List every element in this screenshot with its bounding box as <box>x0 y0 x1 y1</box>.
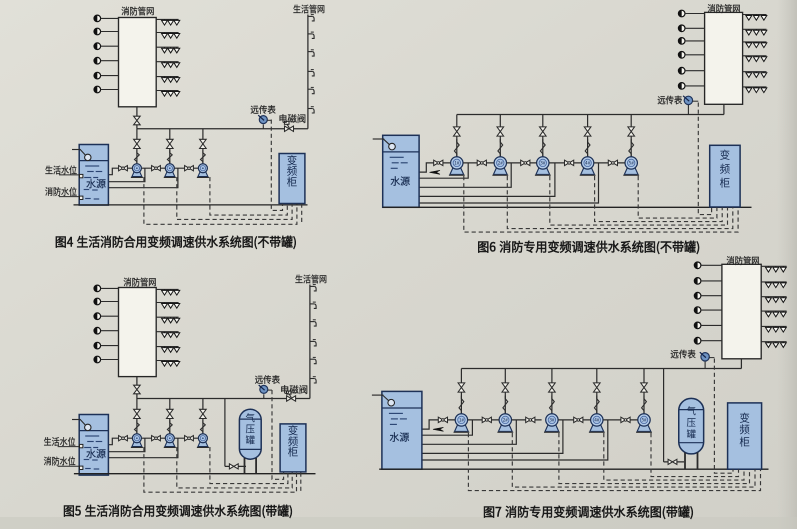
svg-text:生活管网: 生活管网 <box>293 3 325 16</box>
svg-text:柜: 柜 <box>287 174 298 189</box>
svg-text:图5 生活消防合用变频调速供水系统图(带罐): 图5 生活消防合用变频调速供水系统图(带罐) <box>63 501 293 520</box>
svg-text:柜: 柜 <box>288 445 299 460</box>
svg-text:频: 频 <box>720 162 731 177</box>
svg-text:柜: 柜 <box>720 176 731 191</box>
svg-text:5#: 5# <box>629 161 635 167</box>
svg-text:2#: 2# <box>503 418 509 424</box>
svg-text:消防水位: 消防水位 <box>45 185 77 198</box>
svg-text:图6 消防专用变频调速供水系统图(不带罐): 图6 消防专用变频调速供水系统图(不带罐) <box>477 236 700 255</box>
svg-text:水源: 水源 <box>86 446 106 461</box>
svg-text:柜: 柜 <box>739 435 750 450</box>
svg-text:远传表: 远传表 <box>670 348 695 361</box>
svg-text:消防管网: 消防管网 <box>121 5 154 18</box>
svg-text:3#: 3# <box>540 161 546 167</box>
svg-text:远传表: 远传表 <box>250 103 275 116</box>
svg-text:图4 生活消防合用变频调速供水系统图(不带罐): 图4 生活消防合用变频调速供水系统图(不带罐) <box>55 231 297 250</box>
svg-text:水源: 水源 <box>389 429 409 444</box>
svg-text:1#: 1# <box>454 161 460 167</box>
svg-text:生活水位: 生活水位 <box>45 163 77 176</box>
svg-text:2#: 2# <box>498 161 504 167</box>
svg-text:电磁阀: 电磁阀 <box>278 112 306 125</box>
svg-text:远传表: 远传表 <box>255 373 280 386</box>
svg-text:电磁阀: 电磁阀 <box>280 383 308 396</box>
svg-text:生活管网: 生活管网 <box>295 273 327 286</box>
svg-text:1#: 1# <box>459 418 465 424</box>
svg-text:罐: 罐 <box>246 433 256 447</box>
svg-text:生活水位: 生活水位 <box>44 435 76 448</box>
svg-text:3#: 3# <box>549 418 555 424</box>
svg-text:水源: 水源 <box>86 176 106 191</box>
svg-text:消防水位: 消防水位 <box>44 455 76 468</box>
svg-text:水源: 水源 <box>390 173 410 188</box>
svg-text:图7 消防专用变频调速供水系统图(带罐): 图7 消防专用变频调速供水系统图(带罐) <box>483 502 694 521</box>
svg-text:远传表: 远传表 <box>657 93 682 106</box>
svg-text:4#: 4# <box>594 418 600 424</box>
svg-text:消防管网: 消防管网 <box>707 2 740 15</box>
svg-text:消防管网: 消防管网 <box>123 275 156 288</box>
svg-text:罐: 罐 <box>686 427 696 441</box>
svg-text:4#: 4# <box>585 161 591 167</box>
svg-text:5#: 5# <box>641 418 647 424</box>
svg-text:消防管网: 消防管网 <box>726 254 759 267</box>
svg-text:变: 变 <box>720 148 731 163</box>
